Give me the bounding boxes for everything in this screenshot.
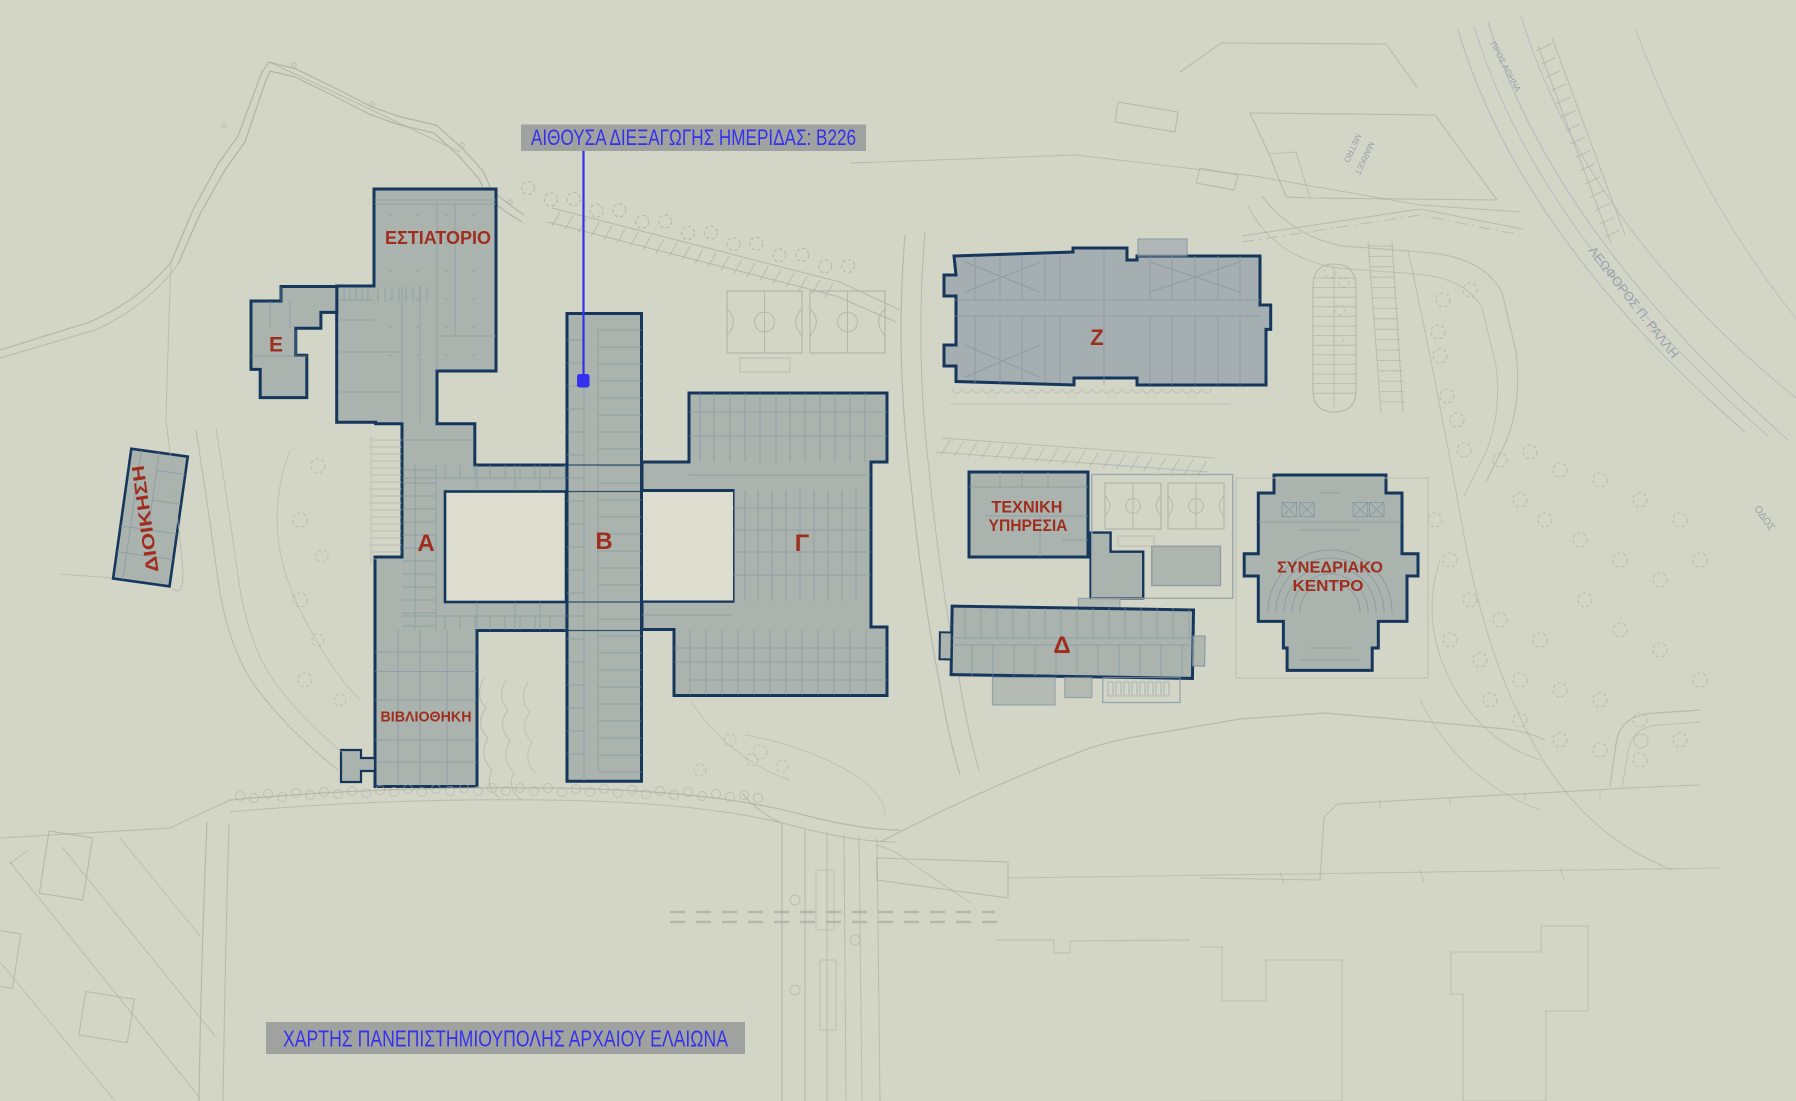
svg-text:ΕΣΤΙΑΤΟΡΙΟ: ΕΣΤΙΑΤΟΡΙΟ [385,228,491,248]
svg-text:Α: Α [417,530,434,557]
svg-text:Β: Β [595,528,612,555]
svg-text:ΣΥΝΕΔΡΙΑΚΟ: ΣΥΝΕΔΡΙΑΚΟ [1277,559,1383,576]
svg-text:ΥΠΗΡΕΣΙΑ: ΥΠΗΡΕΣΙΑ [989,516,1068,535]
svg-text:ΒΙΒΛΙΟΘΗΚΗ: ΒΙΒΛΙΟΘΗΚΗ [381,709,472,726]
svg-text:Γ: Γ [795,530,810,557]
svg-text:ΧΑΡΤΗΣ ΠΑΝΕΠΙΣΤΗΜΙΟΥΠΟΛΗΣ ΑΡΧΑ: ΧΑΡΤΗΣ ΠΑΝΕΠΙΣΤΗΜΙΟΥΠΟΛΗΣ ΑΡΧΑΙΟΥ ΕΛΑΙΩΝ… [283,1026,728,1052]
svg-text:Ε: Ε [269,334,283,357]
svg-text:ΚΕΝΤΡΟ: ΚΕΝΤΡΟ [1293,578,1364,595]
svg-text:Ζ: Ζ [1090,325,1103,350]
svg-text:ΑΙΘΟΥΣΑ ΔΙΕΞΑΓΩΓΗΣ ΗΜΕΡΙΔΑΣ: Β: ΑΙΘΟΥΣΑ ΔΙΕΞΑΓΩΓΗΣ ΗΜΕΡΙΔΑΣ: Β226 [531,125,856,150]
svg-text:Δ: Δ [1053,632,1070,659]
svg-text:ΤΕΧΝΙΚΗ: ΤΕΧΝΙΚΗ [992,498,1063,517]
